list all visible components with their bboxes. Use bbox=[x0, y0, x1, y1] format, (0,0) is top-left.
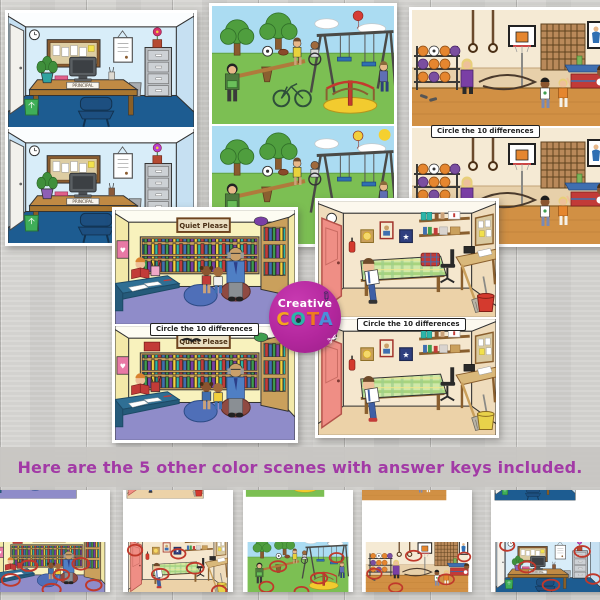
thumbnail-nurse-answer-key bbox=[123, 490, 233, 592]
logo-letter-o-eye: O bbox=[291, 309, 307, 330]
playground-mini-top bbox=[243, 490, 353, 540]
library-scene-1 bbox=[115, 210, 295, 324]
circle-differences-label: Circle the 10 differences bbox=[150, 323, 259, 336]
gym-mini-top bbox=[362, 490, 472, 540]
playground-scene-1 bbox=[212, 6, 394, 124]
playground-mini-answer-key bbox=[243, 542, 353, 592]
caption-text: Here are the 5 other color scenes with a… bbox=[17, 458, 582, 477]
thumbnail-gym-answer-key bbox=[362, 490, 472, 592]
caption-band: Here are the 5 other color scenes with a… bbox=[0, 447, 600, 487]
nurse-office-scene-1 bbox=[318, 201, 496, 317]
logo-letter-a: A bbox=[319, 309, 334, 330]
library-mini-top bbox=[0, 490, 110, 540]
gym-scene-1 bbox=[412, 10, 600, 126]
logo-letter-t: T bbox=[307, 309, 319, 330]
library-mini-answer-key bbox=[0, 542, 110, 592]
circle-differences-label: Circle the 10 differences bbox=[431, 125, 540, 138]
office-mini-top bbox=[491, 490, 600, 540]
thumbnail-library-answer-key bbox=[0, 490, 110, 592]
library-scene-2 bbox=[115, 326, 295, 440]
office-mini-answer-key bbox=[491, 542, 600, 592]
nurse-office-scene-2 bbox=[318, 319, 496, 435]
thumbnail-playground-answer-key bbox=[243, 490, 353, 592]
thumbnail-principal-office-answer-key bbox=[491, 490, 600, 592]
circle-differences-label: Circle the 10 differences bbox=[357, 318, 466, 331]
nurse-mini-top bbox=[123, 490, 233, 540]
gym-mini-answer-key bbox=[362, 542, 472, 592]
product-collage: Circle the 10 differences Circle the 10 … bbox=[0, 0, 600, 600]
principal-office-scene-1 bbox=[8, 13, 194, 127]
nurse-mini-answer-key bbox=[123, 542, 233, 592]
card-nurse-office: Circle the 10 differences bbox=[315, 198, 499, 438]
creative-cota-logo: Creative COTA ✎ ✂ bbox=[269, 281, 341, 353]
logo-text-cota: COTA bbox=[269, 311, 341, 329]
logo-letter-c: C bbox=[276, 309, 290, 330]
